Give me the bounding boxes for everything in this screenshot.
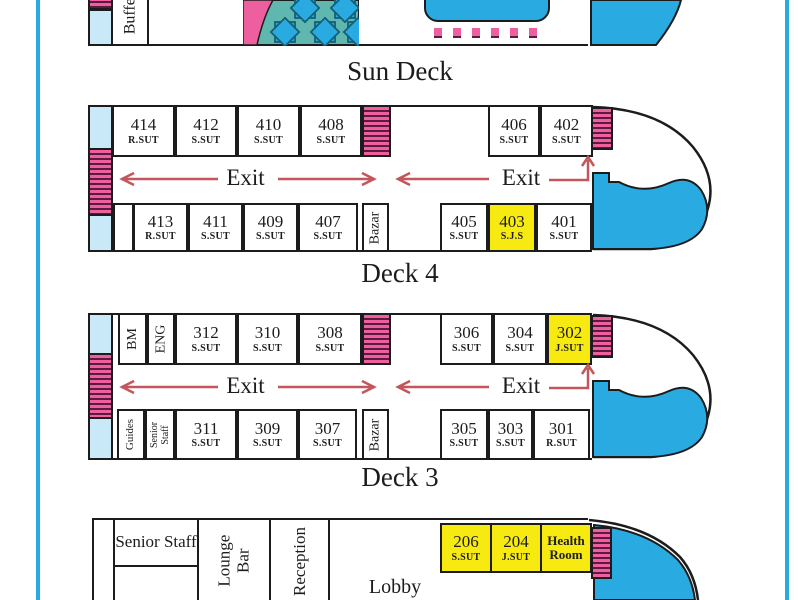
deck4-exit-right-label: Exit — [496, 166, 546, 189]
deck3-senior-staff-room: Senior Staff — [145, 409, 175, 460]
deck3-exit-right-label: Exit — [496, 374, 546, 397]
sun-deck-pattern-area — [243, 0, 359, 46]
lounger — [453, 28, 461, 38]
room-number: 409 — [258, 213, 284, 231]
room-number: 302 — [557, 324, 583, 342]
room-type: S.SUT — [505, 344, 534, 354]
room-type: S.SUT — [452, 344, 481, 354]
room-type: S.SUT — [313, 439, 342, 449]
room-number: 414 — [131, 116, 157, 134]
room-type: S.SUT — [191, 344, 220, 354]
deck3-stern-cabin-bottom — [88, 417, 113, 460]
room-301: 301 R.SUT — [533, 409, 590, 460]
room-306: 306 S.SUT — [440, 313, 493, 365]
room-number: 206 — [453, 533, 479, 551]
room-type: S.SUT — [449, 439, 478, 449]
room-type: S.SUT — [191, 439, 220, 449]
deck4-stern-cabin-top — [88, 105, 113, 150]
room-number: 301 — [549, 420, 575, 438]
room-type: S.J.S — [501, 232, 524, 242]
exit-arrow-left — [119, 171, 219, 187]
deck2-side-corridor — [92, 518, 115, 600]
room-309: 309 S.SUT — [237, 409, 298, 460]
room-type: S.SUT — [552, 136, 581, 146]
room-310: 310 S.SUT — [237, 313, 298, 365]
deck4-exit-left-label: Exit — [218, 166, 273, 189]
deck-plan-page: Buffet Sun Deck — [0, 0, 800, 600]
health-room-label: Health Room — [542, 534, 590, 563]
room-type: S.SUT — [191, 136, 220, 146]
deck3-exit-left-label: Exit — [218, 374, 273, 397]
room-403-highlighted: 403 S.J.S — [488, 203, 536, 252]
pool — [424, 0, 550, 22]
room-401: 401 S.SUT — [536, 203, 592, 252]
health-room-highlighted: Health Room — [540, 523, 592, 573]
deck3-mid-stairs — [362, 313, 391, 365]
room-number: 307 — [315, 420, 341, 438]
room-type: S.SUT — [201, 232, 230, 242]
deck4-bazar: Bazar — [362, 203, 389, 252]
deck4-bow-stairs — [591, 107, 613, 150]
deck4-stern-stairs — [88, 148, 113, 216]
room-304: 304 S.SUT — [493, 313, 547, 365]
room-number: 406 — [501, 116, 527, 134]
room-type: S.SUT — [254, 136, 283, 146]
room-414: 414 R.SUT — [112, 105, 175, 157]
deck3-stern-cabin-top — [88, 313, 113, 355]
deck2-staff-room-lower — [113, 565, 199, 600]
exit-arrow-right — [277, 379, 377, 395]
exit-arrow-left — [395, 379, 490, 395]
bm-label: BM — [125, 328, 139, 350]
bazar-label: Bazar — [369, 418, 383, 451]
room-206-highlighted: 206 S.SUT — [440, 523, 492, 573]
room-number: 405 — [451, 213, 477, 231]
page-border-left — [36, 0, 40, 600]
guides-label: Guides — [126, 419, 137, 450]
room-type: S.SUT — [451, 553, 480, 563]
deck2-lobby-label: Lobby — [345, 576, 445, 599]
room-number: 311 — [194, 420, 219, 438]
room-412: 412 S.SUT — [175, 105, 237, 157]
bazar-label: Bazar — [369, 211, 383, 244]
room-305: 305 S.SUT — [440, 409, 488, 460]
room-302-highlighted: 302 J.SUT — [547, 313, 592, 365]
sun-deck-label: Sun Deck — [300, 58, 500, 85]
room-307: 307 S.SUT — [298, 409, 357, 460]
room-402: 402 S.SUT — [540, 105, 593, 157]
room-number: 303 — [498, 420, 524, 438]
exit-arrow-left — [395, 171, 490, 187]
exit-arrow-left — [119, 379, 219, 395]
room-409: 409 S.SUT — [243, 203, 298, 252]
room-type: S.SUT — [549, 232, 578, 242]
room-number: 408 — [318, 116, 344, 134]
deck3-label: Deck 3 — [300, 464, 500, 491]
room-405: 405 S.SUT — [440, 203, 488, 252]
sun-deck-stern-cabin — [88, 9, 113, 46]
room-number: 310 — [255, 324, 281, 342]
room-type: S.SUT — [253, 439, 282, 449]
room-type: S.SUT — [256, 232, 285, 242]
room-number: 413 — [148, 213, 174, 231]
room-type: R.SUT — [128, 136, 159, 146]
room-number: 304 — [507, 324, 533, 342]
deck4-label: Deck 4 — [300, 260, 500, 287]
room-number: 407 — [315, 213, 341, 231]
room-413: 413 R.SUT — [133, 203, 188, 252]
deck4-stern-cabin-bottom — [88, 214, 113, 252]
senior-staff-label: Senior Staff — [149, 421, 171, 447]
room-number: 309 — [255, 420, 281, 438]
room-311: 311 S.SUT — [175, 409, 237, 460]
room-number: 410 — [256, 116, 282, 134]
room-type: S.SUT — [313, 232, 342, 242]
exit-arrow-up-bend — [548, 152, 596, 184]
room-type: J.SUT — [555, 344, 583, 354]
lounge-bar-label: Lounge Bar — [215, 535, 252, 587]
lounger — [529, 28, 537, 38]
room-type: S.SUT — [315, 344, 344, 354]
lounger — [472, 28, 480, 38]
room-408: 408 S.SUT — [300, 105, 362, 157]
lounger — [434, 28, 442, 38]
lounger — [510, 28, 518, 38]
room-number: 402 — [554, 116, 580, 134]
room-number: 204 — [503, 533, 529, 551]
room-type: S.SUT — [496, 439, 525, 449]
buffet-room: Buffet — [111, 0, 149, 46]
room-number: 312 — [193, 324, 219, 342]
deck3-stern-stairs — [88, 353, 113, 419]
senior-staff-label: Senior Staff — [115, 533, 196, 552]
room-type: S.SUT — [316, 136, 345, 146]
eng-label: ENG — [154, 325, 168, 354]
room-number: 308 — [317, 324, 343, 342]
room-type: R.SUT — [546, 439, 577, 449]
room-type: S.SUT — [499, 136, 528, 146]
room-410: 410 S.SUT — [237, 105, 300, 157]
room-407: 407 S.SUT — [298, 203, 358, 252]
room-number: 411 — [203, 213, 228, 231]
room-411: 411 S.SUT — [188, 203, 243, 252]
deck3-bow-stairs — [591, 315, 613, 358]
room-303: 303 S.SUT — [488, 409, 533, 460]
deck3-guides-room: Guides — [117, 409, 145, 460]
room-number: 401 — [551, 213, 577, 231]
room-312: 312 S.SUT — [175, 313, 237, 365]
deck2-bow-stairs — [591, 527, 612, 579]
room-number: 305 — [451, 420, 477, 438]
deck3-bm-room: BM — [118, 313, 147, 365]
deck2-lounge-bar: Lounge Bar — [197, 518, 271, 600]
room-number: 306 — [454, 324, 480, 342]
deck4-mid-stairs — [362, 105, 391, 157]
room-406: 406 S.SUT — [488, 105, 540, 157]
buffet-label: Buffet — [122, 0, 138, 34]
room-type: J.SUT — [502, 553, 530, 563]
exit-arrow-up-bend — [548, 360, 596, 392]
deck2-senior-staff-room: Senior Staff — [113, 518, 199, 567]
exit-arrow-right — [277, 171, 377, 187]
deck2-reception: Reception — [269, 518, 330, 600]
reception-label: Reception — [291, 527, 308, 596]
room-204-highlighted: 204 J.SUT — [490, 523, 542, 573]
room-type: S.SUT — [449, 232, 478, 242]
room-number: 403 — [499, 213, 525, 231]
deck3-bazar: Bazar — [362, 409, 389, 460]
room-type: S.SUT — [253, 344, 282, 354]
room-308: 308 S.SUT — [298, 313, 362, 365]
lounger — [491, 28, 499, 38]
room-number: 412 — [193, 116, 219, 134]
room-type: R.SUT — [145, 232, 176, 242]
deck3-eng-room: ENG — [147, 313, 175, 365]
sun-deck-bow — [584, 0, 686, 47]
page-border-right — [785, 0, 789, 600]
deck4-service-cell — [113, 203, 134, 252]
